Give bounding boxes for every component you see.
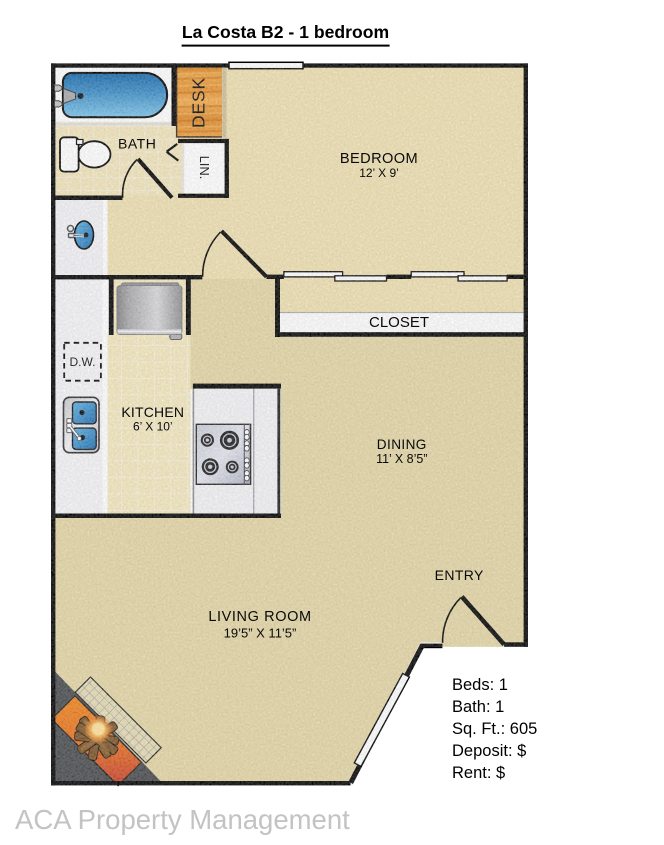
svg-text:CLOSET: CLOSET (369, 314, 429, 331)
svg-text:KITCHEN: KITCHEN (121, 404, 184, 420)
svg-text:BATH: BATH (118, 136, 156, 152)
svg-text:Deposit: $: Deposit: $ (452, 742, 526, 760)
svg-text:11’ X 8’5”: 11’ X 8’5” (376, 452, 427, 466)
svg-text:Rent: $: Rent: $ (452, 764, 505, 782)
svg-text:Bath: 1: Bath: 1 (452, 698, 504, 716)
svg-text:12’ X 9’: 12’ X 9’ (359, 166, 399, 180)
svg-text:Sq. Ft.: 605: Sq. Ft.: 605 (452, 720, 537, 738)
svg-text:DINING: DINING (377, 437, 427, 452)
svg-text:ACA Property Management: ACA Property Management (15, 804, 350, 835)
svg-text:Beds: 1: Beds: 1 (452, 676, 508, 694)
svg-text:La Costa B2 - 1 bedroom: La Costa B2 - 1 bedroom (182, 22, 389, 42)
svg-text:6’ X 10’: 6’ X 10’ (133, 420, 173, 434)
svg-text:BEDROOM: BEDROOM (340, 151, 418, 167)
svg-text:LIVING ROOM: LIVING ROOM (208, 609, 311, 625)
svg-text:19’5” X 11’5”: 19’5” X 11’5” (224, 626, 297, 641)
svg-text:ENTRY: ENTRY (435, 567, 484, 583)
